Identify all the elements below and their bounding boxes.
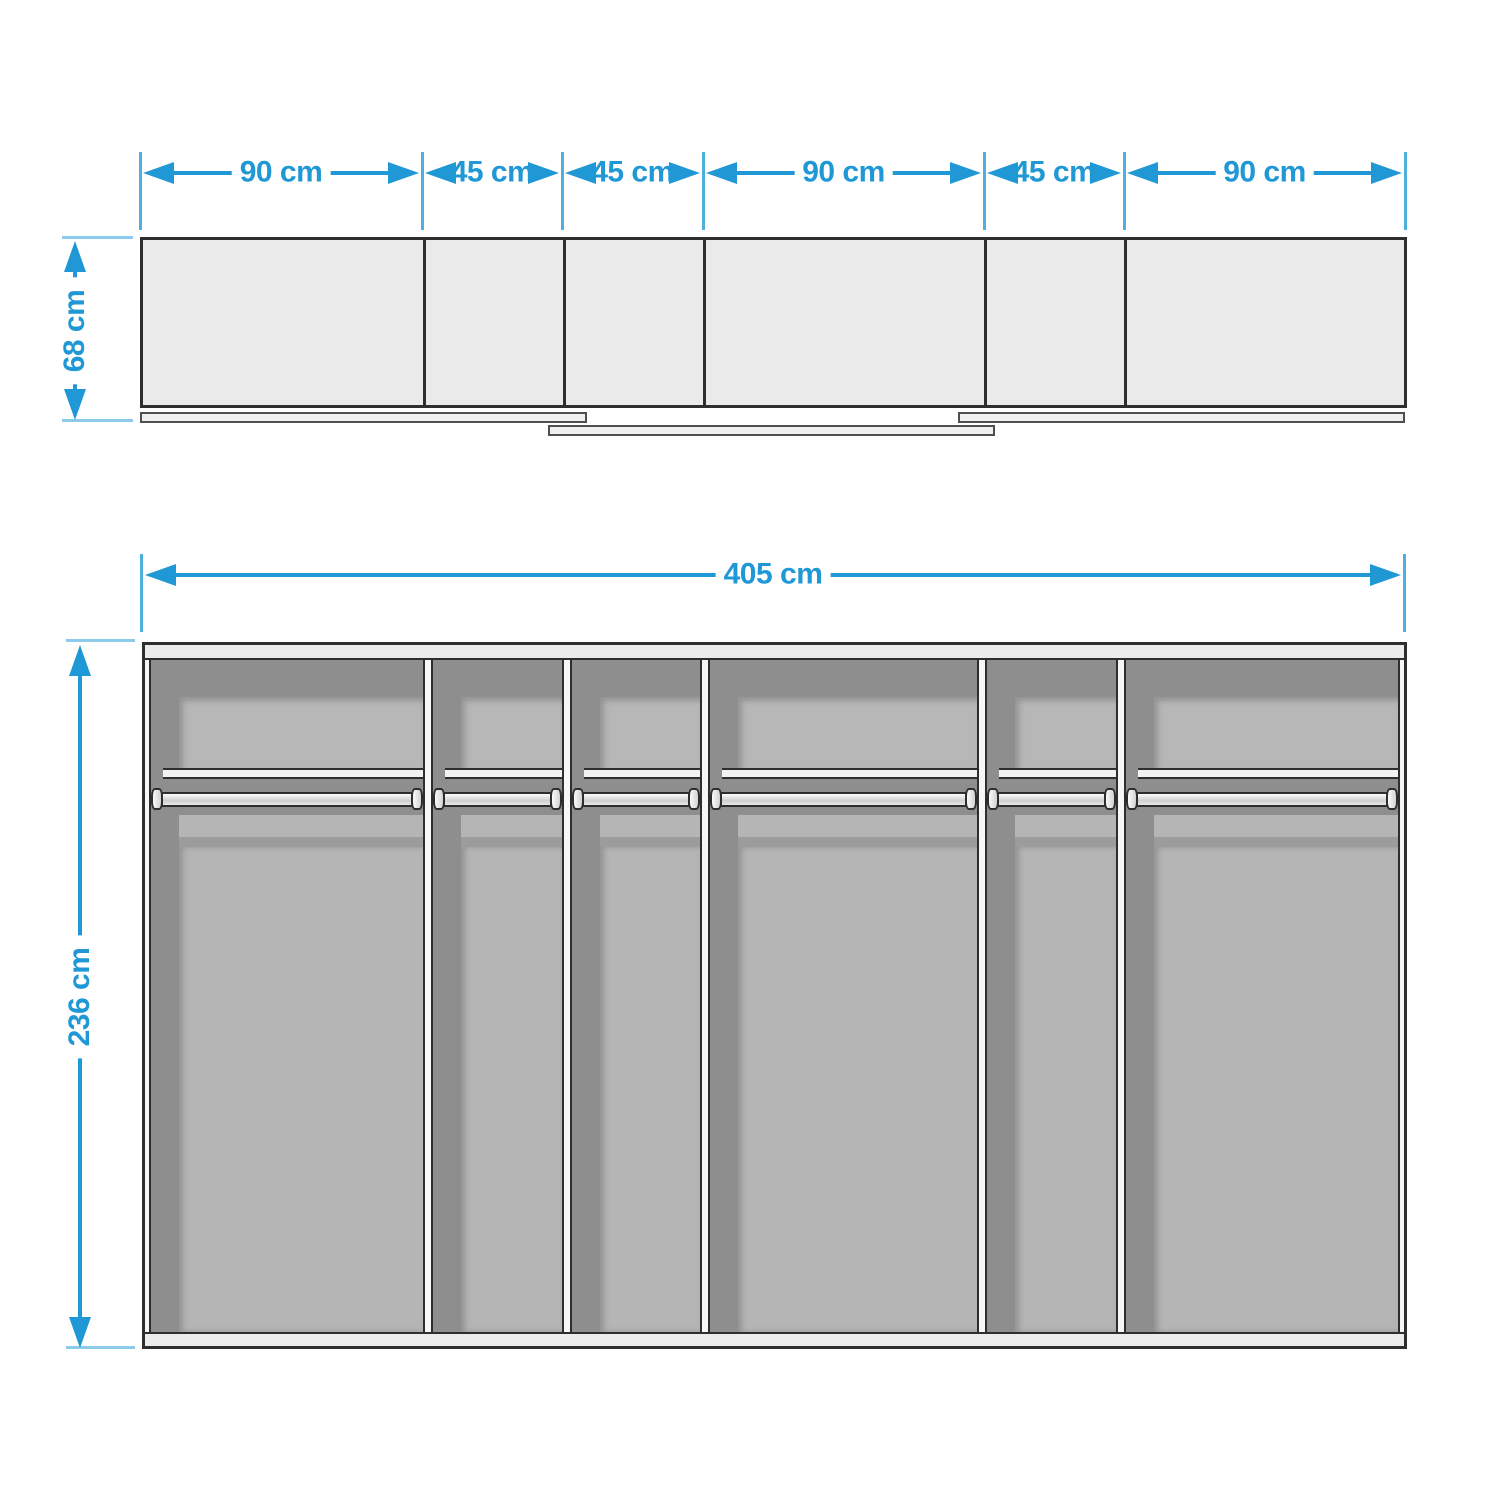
lower-back-panel-top xyxy=(461,815,562,837)
rail-bracket-right-icon xyxy=(411,788,423,810)
dimension-depth: 68 cm xyxy=(58,240,92,421)
carcass-divider-line xyxy=(703,240,706,405)
dimension-height: 236 cm xyxy=(63,644,97,1349)
carcass-divider-line xyxy=(423,240,426,405)
divider xyxy=(562,660,572,1332)
lower-back-panel-top xyxy=(179,815,423,837)
arrowhead-right-icon xyxy=(388,162,419,184)
sliding-door-center xyxy=(548,425,995,436)
top-panel xyxy=(145,645,1404,660)
lower-panel-shadow xyxy=(600,837,700,847)
shelf xyxy=(722,768,977,779)
wardrobe-dimension-diagram: 90 cm 45 cm 45 cm 90 cm 45 cm 90 cm 68 c xyxy=(0,0,1500,1500)
arrowhead-right-icon xyxy=(669,162,700,184)
lower-back-panel-top xyxy=(738,815,977,837)
sliding-door-left xyxy=(140,412,587,423)
lower-back-panel-top xyxy=(600,815,700,837)
compartment-1 xyxy=(151,660,423,1332)
compartment-3 xyxy=(572,660,700,1332)
side-wall-right xyxy=(1398,660,1404,1332)
dimension-label: 68 cm xyxy=(54,277,96,384)
segment-tick xyxy=(1404,152,1407,230)
dimension-label: 45 cm xyxy=(1013,155,1096,189)
arrowhead-right-icon xyxy=(1371,162,1402,184)
upper-back-panel xyxy=(1154,697,1398,769)
shelf xyxy=(1138,768,1398,779)
lower-back-panel xyxy=(1154,847,1398,1332)
dimension-label: 236 cm xyxy=(59,935,101,1058)
divider xyxy=(700,660,710,1332)
compartment-2 xyxy=(433,660,562,1332)
base-panel xyxy=(145,1332,1404,1346)
lower-panel-shadow xyxy=(1015,837,1116,847)
rail-bracket-left-icon xyxy=(1126,788,1138,810)
lower-panel-shadow xyxy=(179,837,423,847)
dimension-label: 45 cm xyxy=(451,155,534,189)
lower-back-panel xyxy=(461,847,562,1332)
hanging-rail xyxy=(443,792,552,807)
divider xyxy=(1116,660,1126,1332)
lower-back-panel xyxy=(738,847,977,1332)
front-view-carcass xyxy=(142,642,1407,1349)
arrowhead-down-icon xyxy=(64,389,86,420)
hanging-rail xyxy=(161,792,413,807)
hanging-rail xyxy=(997,792,1106,807)
arrowhead-right-icon xyxy=(950,162,981,184)
rail-bracket-right-icon xyxy=(965,788,977,810)
hanging-rail xyxy=(720,792,967,807)
dimension-label: 90 cm xyxy=(232,155,331,189)
dimension-label: 90 cm xyxy=(794,155,893,189)
lower-panel-shadow xyxy=(738,837,977,847)
shelf xyxy=(999,768,1116,779)
compartment-4 xyxy=(710,660,977,1332)
dimension-segment-3: 45 cm xyxy=(564,156,701,190)
upper-back-panel xyxy=(461,697,562,769)
dimension-segment-5: 45 cm xyxy=(986,156,1122,190)
rail-bracket-right-icon xyxy=(550,788,562,810)
width-tick-right xyxy=(1403,554,1406,632)
rail-bracket-right-icon xyxy=(1386,788,1398,810)
compartment-6 xyxy=(1126,660,1398,1332)
dimension-label: 45 cm xyxy=(591,155,674,189)
arrowhead-right-icon xyxy=(1090,162,1121,184)
rail-bracket-left-icon xyxy=(987,788,999,810)
dimension-label: 405 cm xyxy=(716,557,831,591)
rail-bracket-left-icon xyxy=(572,788,584,810)
rail-bracket-left-icon xyxy=(710,788,722,810)
dimension-segment-1: 90 cm xyxy=(142,156,420,190)
lower-back-panel xyxy=(600,847,700,1332)
dimension-total-width: 405 cm xyxy=(144,558,1402,592)
depth-tick-top xyxy=(62,236,133,239)
rail-bracket-right-icon xyxy=(1104,788,1116,810)
lower-back-panel-top xyxy=(1015,815,1116,837)
rail-bracket-left-icon xyxy=(433,788,445,810)
lower-back-panel xyxy=(1015,847,1116,1332)
divider xyxy=(977,660,987,1332)
shelf xyxy=(584,768,700,779)
lower-back-panel-top xyxy=(1154,815,1398,837)
dimension-label: 90 cm xyxy=(1215,155,1314,189)
upper-back-panel xyxy=(179,697,423,769)
rail-bracket-right-icon xyxy=(688,788,700,810)
arrowhead-right-icon xyxy=(528,162,559,184)
dimension-segment-2: 45 cm xyxy=(424,156,560,190)
shelf xyxy=(163,768,423,779)
hanging-rail xyxy=(582,792,690,807)
carcass-divider-line xyxy=(563,240,566,405)
dimension-segment-4: 90 cm xyxy=(705,156,982,190)
carcass-divider-line xyxy=(984,240,987,405)
sliding-door-right xyxy=(958,412,1405,423)
upper-back-panel xyxy=(600,697,700,769)
upper-back-panel xyxy=(738,697,977,769)
compartment-5 xyxy=(987,660,1116,1332)
upper-back-panel xyxy=(1015,697,1116,769)
carcass-interior xyxy=(151,660,1398,1332)
lower-panel-shadow xyxy=(1154,837,1398,847)
height-tick-top xyxy=(66,639,135,642)
width-tick-left xyxy=(140,554,143,632)
top-view-carcass xyxy=(140,237,1407,408)
hanging-rail xyxy=(1136,792,1388,807)
shelf xyxy=(445,768,562,779)
arrowhead-right-icon xyxy=(1370,564,1401,586)
divider xyxy=(423,660,433,1332)
rail-bracket-left-icon xyxy=(151,788,163,810)
lower-back-panel xyxy=(179,847,423,1332)
arrowhead-down-icon xyxy=(69,1317,91,1348)
lower-panel-shadow xyxy=(461,837,562,847)
dimension-segment-6: 90 cm xyxy=(1126,156,1403,190)
carcass-divider-line xyxy=(1124,240,1127,405)
